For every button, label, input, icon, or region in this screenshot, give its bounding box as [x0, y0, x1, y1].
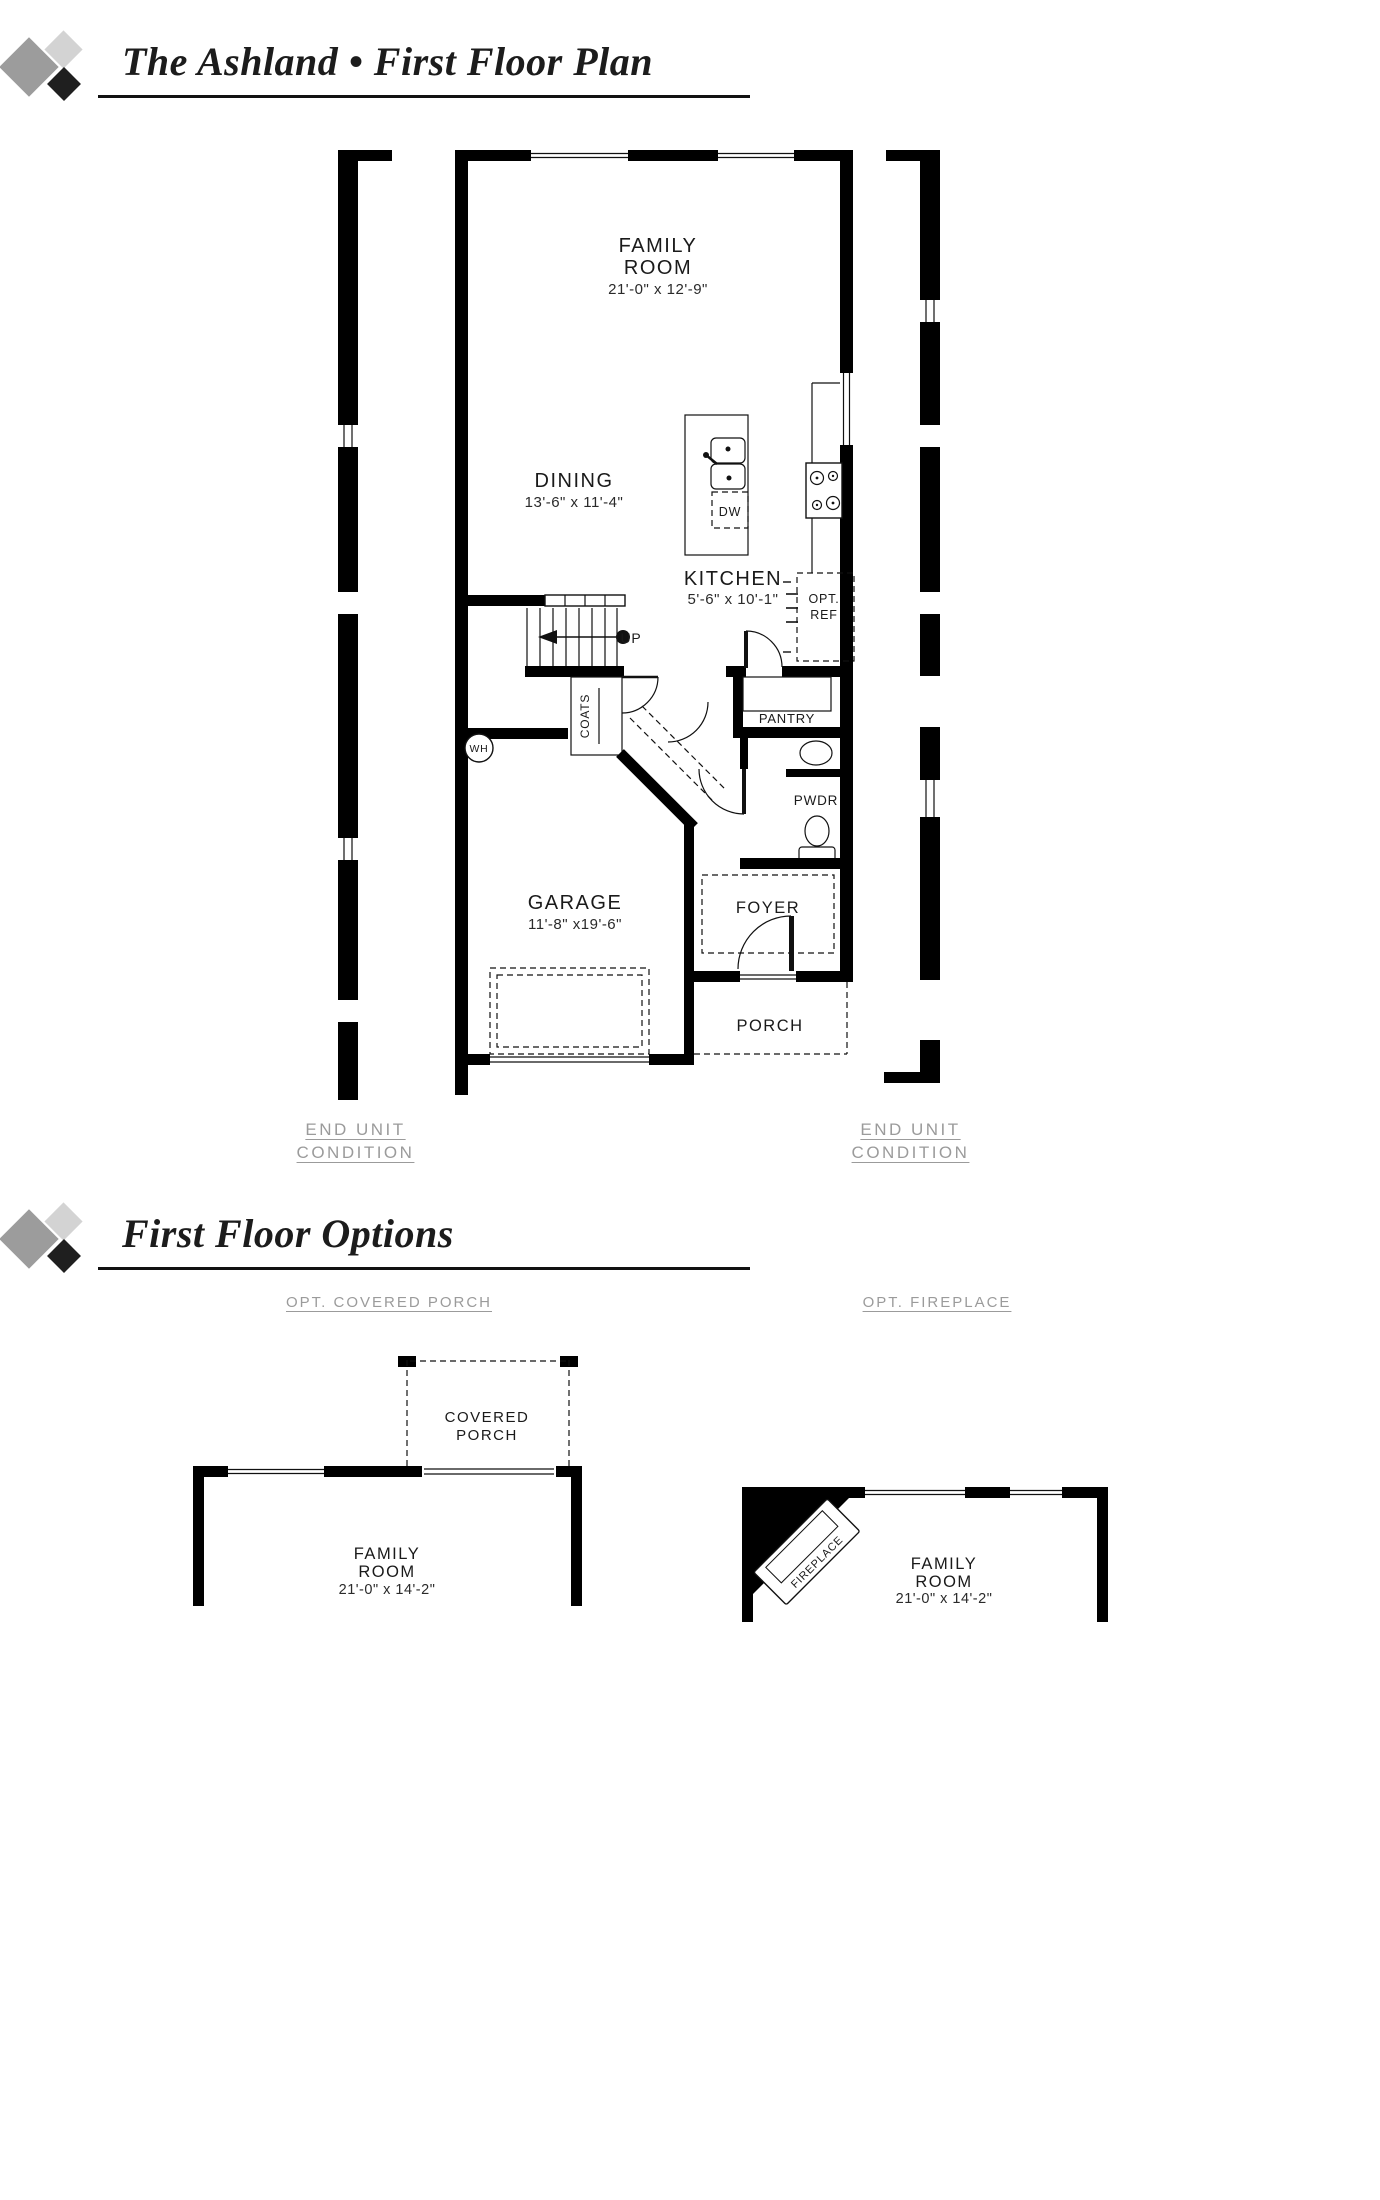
- kitchen-door-swing: [744, 631, 782, 668]
- front-door-swing: [738, 916, 796, 979]
- family-room-label: FAMILY: [354, 1545, 420, 1563]
- range-stove: [806, 463, 842, 518]
- coats-label: COATS: [578, 694, 592, 738]
- plan-labels: FAMILY ROOM 21'-0" x 12'-9" DINING 13'-6…: [469, 235, 839, 1035]
- up-label: UP: [620, 630, 641, 646]
- option-covered-porch-plan: COVERED PORCH FAMILY ROOM 21'-0" x 14'-2…: [193, 1356, 582, 1606]
- garage-door: [490, 968, 649, 1062]
- toilet: [799, 816, 835, 862]
- dining-dims: 13'-6" x 11'-4": [525, 494, 624, 511]
- family-room-label: ROOM: [915, 1573, 972, 1591]
- family-room-dims: 21'-0" x 14'-2": [896, 1591, 993, 1607]
- closet-door-swing: [622, 677, 658, 713]
- kitchen-island: [685, 415, 748, 555]
- foyer-label: FOYER: [736, 899, 800, 917]
- powder-sink: [800, 741, 832, 765]
- kitchen-fixtures: [685, 383, 854, 677]
- dining-label: DINING: [535, 470, 614, 492]
- covered-porch-label: PORCH: [456, 1427, 518, 1444]
- pantry-room: [733, 677, 853, 738]
- kitchen-dims: 5'-6" x 10'-1": [688, 591, 779, 608]
- family-room-label: ROOM: [624, 257, 692, 279]
- garage-label: GARAGE: [528, 892, 623, 914]
- family-room-window: [865, 1487, 1062, 1498]
- floor-plan-sheet: The Ashland • First Floor Plan First Flo…: [0, 0, 1380, 2200]
- angled-hall: [620, 702, 725, 827]
- family-room-label: FAMILY: [911, 1555, 977, 1573]
- hall-door-swing: [668, 702, 708, 742]
- porch-slider-door: [424, 1469, 554, 1474]
- pantry-shelf: [743, 677, 831, 711]
- family-room-label: FAMILY: [619, 235, 698, 257]
- end-unit-wall-left: [338, 150, 392, 1100]
- corner-fireplace: FIREPLACE: [753, 1498, 860, 1605]
- family-room-dims: 21'-0" x 12'-9": [608, 281, 708, 298]
- floor-plan-canvas: FAMILY ROOM 21'-0" x 12'-9" DINING 13'-6…: [0, 0, 1380, 2200]
- opt-ref-label: REF: [810, 608, 837, 622]
- option-fireplace-plan: FIREPLACE FAMILY ROOM 21'-0" x 14'-2": [742, 1487, 1108, 1622]
- opt-ref-label: OPT.: [809, 592, 840, 606]
- up-arrow: [538, 630, 630, 644]
- powder-door-swing: [699, 769, 746, 814]
- pantry-label: PANTRY: [759, 711, 815, 726]
- family-room-dims: 21'-0" x 14'-2": [339, 1582, 436, 1598]
- staircase: [466, 595, 630, 677]
- kitchen-label: KITCHEN: [684, 568, 782, 590]
- kitchen-window: [840, 373, 853, 445]
- garage-dims: 11'-8" x19'-6": [528, 916, 622, 933]
- water-heater-label: WH: [469, 743, 488, 755]
- dishwasher-label: DW: [719, 505, 741, 519]
- kitchen-sink: [703, 438, 745, 489]
- family-room-label: ROOM: [358, 1563, 415, 1581]
- foyer-room: [684, 875, 853, 982]
- end-unit-wall-right: [884, 150, 940, 1083]
- covered-porch-label: COVERED: [445, 1409, 530, 1426]
- family-room-window: [228, 1466, 324, 1477]
- powder-label: PWDR: [794, 793, 838, 808]
- porch-label: PORCH: [736, 1017, 803, 1035]
